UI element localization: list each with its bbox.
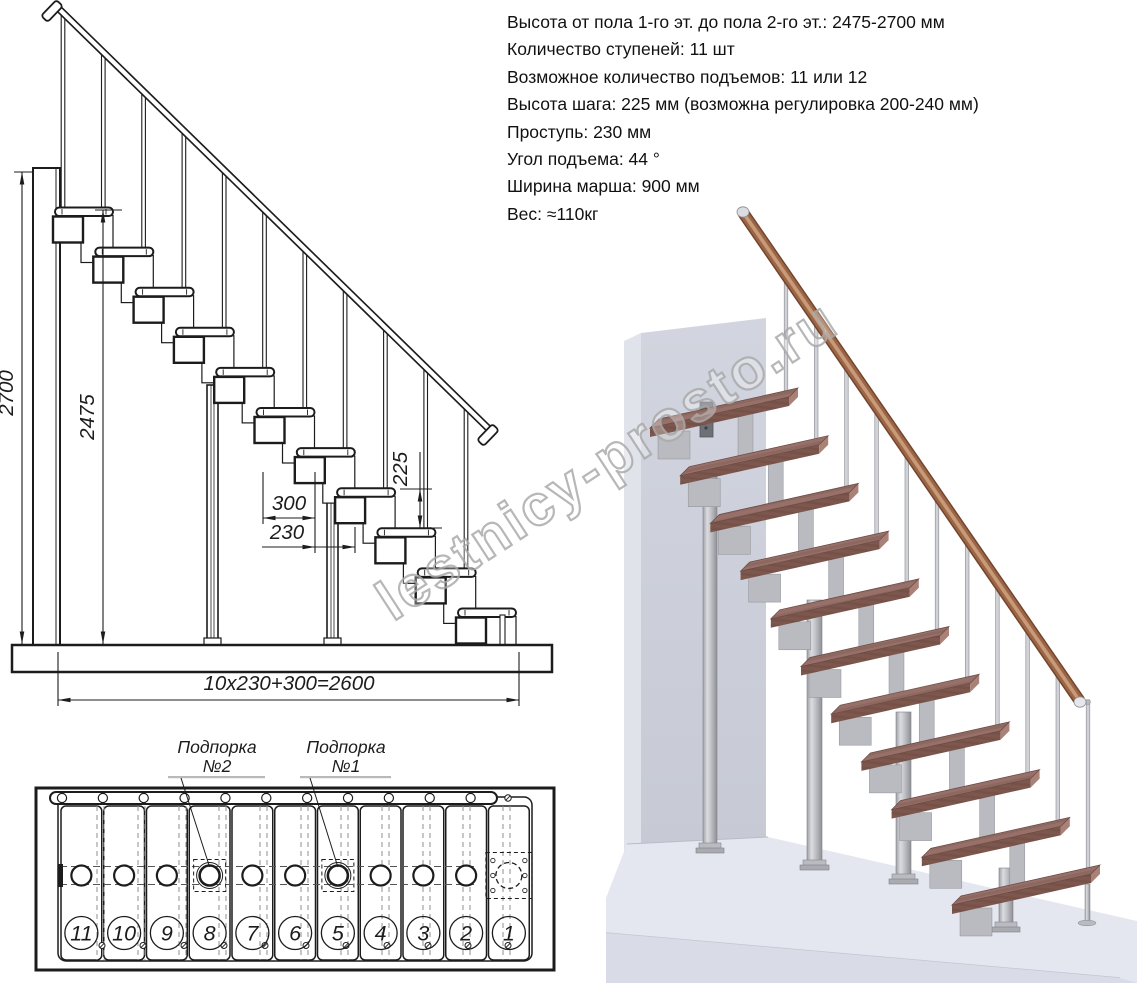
baluster-3d — [996, 582, 1000, 734]
tread — [377, 528, 435, 537]
tread — [458, 609, 516, 618]
support-label-2: №2 — [203, 756, 232, 776]
baluster-3d — [1026, 625, 1030, 781]
tread — [55, 208, 113, 217]
tread-3d — [801, 627, 949, 676]
step-number: 4 — [375, 922, 387, 946]
spec-line: Высота от пола 1-го эт. до пола 2-го эт.… — [507, 9, 1127, 36]
dimension-label-2700: 2700 — [0, 370, 18, 417]
baluster-socket — [221, 793, 230, 802]
support-column — [207, 385, 218, 645]
baluster-3d — [935, 494, 939, 639]
baluster — [61, 15, 65, 208]
baluster-socket — [425, 793, 434, 802]
ground-line — [12, 645, 552, 672]
step-number: 3 — [417, 922, 429, 946]
render-3d — [606, 207, 1137, 983]
baluster-socket — [98, 793, 107, 802]
tread — [95, 248, 153, 257]
label-underline — [300, 776, 391, 778]
structure-circle — [456, 866, 476, 886]
dimension-label-230: 230 — [269, 521, 305, 544]
baluster-socket — [384, 793, 393, 802]
step-number: 11 — [70, 922, 92, 946]
plan-view-drawing: 1110987654321Подпорка№2Подпорка№1 — [36, 737, 554, 970]
spec-text-block: Высота от пола 1-го эт. до пола 2-го эт.… — [507, 9, 1127, 228]
support-label-1: №1 — [332, 756, 361, 776]
baluster-socket — [466, 793, 475, 802]
structure-circle — [285, 866, 305, 886]
screw-icon — [491, 873, 495, 877]
baluster-3d — [845, 363, 849, 496]
screw-icon — [523, 888, 527, 892]
step-number: 10 — [112, 922, 136, 946]
baluster-3d — [1056, 669, 1060, 829]
tread — [337, 488, 395, 497]
spec-line: Проступь: 230 мм — [507, 119, 1127, 146]
step-number: 6 — [289, 922, 301, 946]
baluster-3d — [1086, 700, 1090, 877]
baluster-3d — [965, 538, 969, 686]
spec-line: Вес: ≈110кг — [507, 201, 1127, 228]
label-underline — [168, 776, 265, 778]
dimension-label-300: 300 — [272, 492, 307, 515]
spec-line: Угол подъема: 44 ° — [507, 146, 1127, 173]
structure-circle — [200, 866, 220, 886]
tread — [176, 328, 234, 337]
dimension-label-225: 225 — [389, 451, 412, 487]
step-leg — [500, 615, 505, 645]
structure-circle — [157, 866, 177, 886]
baluster-socket — [303, 793, 312, 802]
structure-circle — [114, 866, 134, 886]
spec-line: Ширина марша: 900 мм — [507, 173, 1127, 200]
tread-3d — [771, 579, 919, 628]
step-leg-3d — [1085, 884, 1090, 922]
structure-circle — [413, 866, 433, 886]
dimension-label-2600: 10x230+300=2600 — [203, 672, 375, 695]
structure-circle — [328, 866, 348, 886]
step-number: 1 — [503, 922, 515, 946]
support-label-2: Подпорка — [177, 737, 256, 757]
baluster-socket — [57, 793, 66, 802]
baluster-3d — [875, 406, 879, 543]
step-number: 7 — [246, 922, 259, 946]
baluster-socket — [262, 793, 271, 802]
screw-icon — [523, 858, 527, 862]
step-number: 9 — [161, 922, 173, 946]
step-number: 8 — [204, 922, 216, 946]
step-number: 5 — [332, 922, 345, 946]
structure-circle — [371, 866, 391, 886]
step-number: 2 — [459, 922, 472, 946]
handrail-end-cap — [477, 424, 499, 446]
tread-3d — [922, 817, 1070, 866]
structure-circle — [71, 866, 91, 886]
spec-line: Высота шага: 225 мм (возможна регулировк… — [507, 91, 1127, 118]
baluster-socket — [139, 793, 148, 802]
structure-circle — [242, 866, 262, 886]
side-elevation-drawing: 2700247530023022510x230+300=2600 — [0, 0, 552, 706]
tread-3d — [861, 722, 1009, 771]
spec-line: Возможное количество подъемов: 11 или 12 — [507, 64, 1127, 91]
baluster-3d — [905, 450, 909, 591]
staircase-spec-sheet: 2700247530023022510x230+300=260011109876… — [0, 0, 1144, 983]
support-column-3d — [896, 712, 911, 876]
screw-icon — [523, 873, 527, 877]
screw-icon — [491, 888, 495, 892]
tread — [136, 288, 194, 297]
tread-3d — [892, 770, 1040, 819]
spec-line: Количество ступеней: 11 шт — [507, 36, 1127, 63]
support-label-1: Подпорка — [306, 737, 385, 757]
screw-icon — [491, 858, 495, 862]
dimension-label-2475: 2475 — [76, 394, 99, 441]
baluster-socket — [343, 793, 352, 802]
tread — [257, 408, 315, 417]
tread — [216, 368, 274, 377]
handrail-cap-bottom — [1074, 697, 1086, 707]
tread — [297, 448, 355, 457]
step-module — [456, 609, 516, 646]
